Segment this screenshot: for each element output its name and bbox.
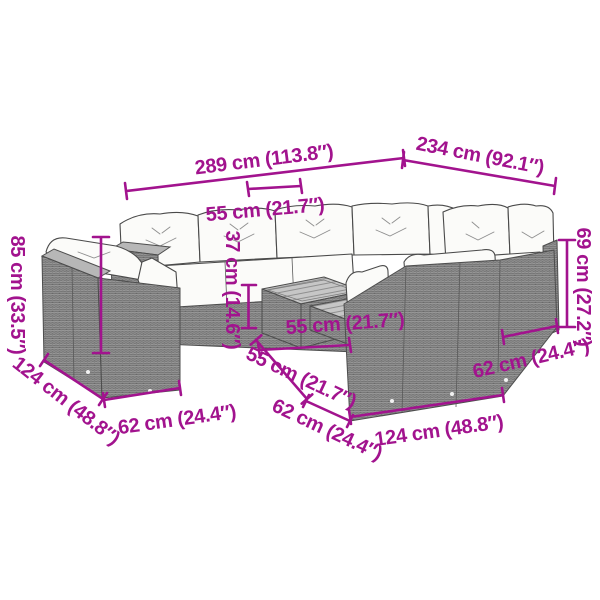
furniture-dimension-diagram: 289 cm (113.8″) 234 cm (92.1″) 55 cm (21… (0, 0, 600, 600)
screw-dot (450, 392, 454, 396)
chair-side-panel (98, 278, 180, 398)
front-left-chair (42, 238, 180, 398)
screw-dot (86, 370, 90, 374)
diagram-canvas: 289 cm (113.8″) 234 cm (92.1″) 55 cm (21… (0, 0, 600, 600)
dim-table-height-label: 37 cm (14.6″) (221, 231, 243, 350)
screw-dot (504, 378, 508, 382)
dim-backrest-height-label: 69 cm (27.2″) (572, 228, 594, 347)
dim-total-height-label: 85 cm (33.5″) (6, 236, 28, 355)
screw-dot (390, 399, 394, 403)
